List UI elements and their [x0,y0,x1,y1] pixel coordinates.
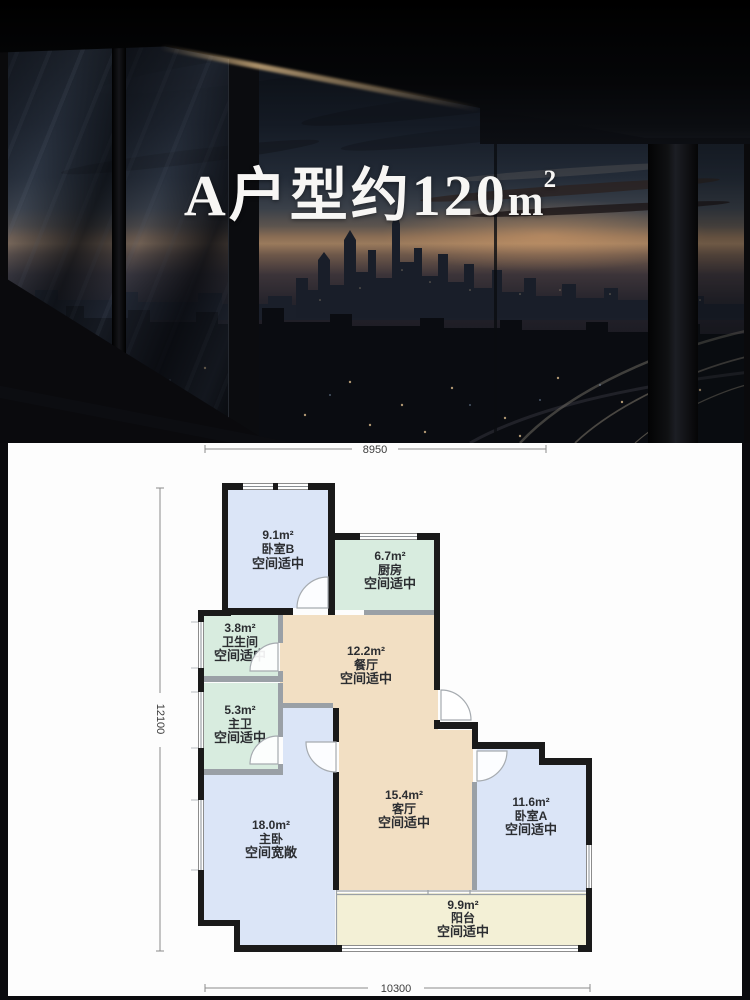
room-balcony: 9.9m² 阳台 空间适中 [337,893,586,945]
room-area: 5.3m² [224,703,255,717]
dim-left: 12100 [154,704,166,735]
room-note: 空间适中 [252,556,304,571]
dim-bottom: 10300 [381,983,412,995]
floor-plan: 9.1m² 卧室B 空间适中 6.7m² 厨房 空间适中 3.8m² 卫生间 空… [0,443,750,1000]
room-master-bedroom: 18.0m² 主卧 空间宽敞 [202,769,335,945]
room-note: 空间适中 [378,815,430,830]
hero-photo: A户型约120m2 [0,0,750,443]
title-unit-sup: 2 [544,166,557,193]
room-note: 空间适中 [364,576,416,591]
room-area: 9.1m² [262,528,293,542]
room-name: 卫生间 [222,634,258,649]
room-area: 18.0m² [252,818,290,832]
room-note: 空间适中 [340,671,392,686]
room-name: 厨房 [378,562,402,577]
promo-image: A户型约120m2 9.1m² 卧室B 空间适中 6.7m² 厨房 空间适中 3… [0,0,750,1000]
unit-type-title: A户型约120m2 [0,144,745,238]
room-note: 空间适中 [505,822,557,837]
title-unit: m [508,178,544,225]
room-name: 卧室A [515,808,548,823]
title-text: A户型约120 [184,163,508,228]
dim-top: 8950 [363,444,387,456]
room-area: 11.6m² [512,795,549,809]
room-note: 空间宽敞 [245,845,298,860]
room-name: 主卫 [228,716,252,731]
room-name: 阳台 [451,910,475,925]
room-kitchen: 6.7m² 厨房 空间适中 [335,540,434,610]
room-name: 卧室B [262,541,295,556]
room-area: 6.7m² [374,549,405,563]
room-name: 客厅 [391,801,416,816]
room-area: 9.9m² [447,898,478,912]
room-name: 餐厅 [354,657,378,672]
room-area: 15.4m² [385,788,423,802]
room-note: 空间适中 [437,924,489,939]
room-name: 主卧 [259,831,283,846]
room-note: 空间适中 [214,730,266,745]
room-area: 12.2m² [347,644,385,658]
room-area: 3.8m² [224,621,255,635]
